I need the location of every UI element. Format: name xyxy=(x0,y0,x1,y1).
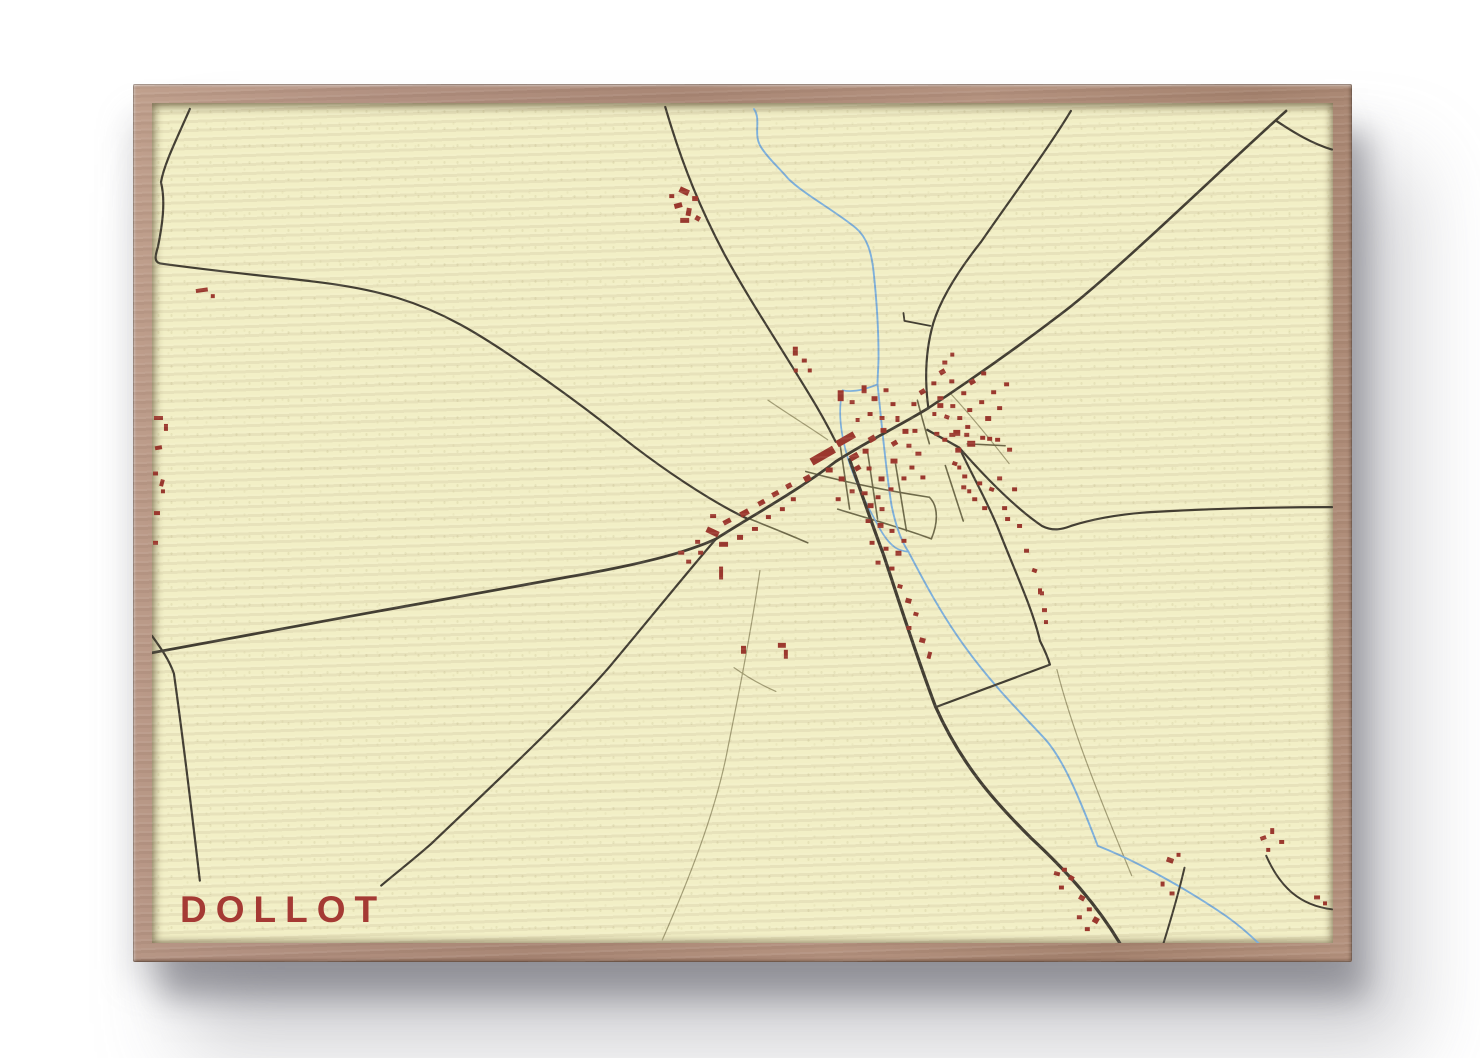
building xyxy=(826,468,833,473)
minor-road xyxy=(895,464,906,531)
building xyxy=(678,186,690,196)
major-road xyxy=(1276,121,1332,150)
building xyxy=(835,431,856,447)
building xyxy=(838,390,844,401)
building xyxy=(680,218,689,223)
map-svg xyxy=(152,103,1333,943)
building xyxy=(808,368,812,372)
building xyxy=(1017,524,1022,528)
building xyxy=(719,567,723,580)
building xyxy=(155,445,163,450)
building xyxy=(1005,517,1010,521)
building xyxy=(862,385,867,393)
building xyxy=(159,479,165,487)
building xyxy=(1166,857,1174,864)
building xyxy=(906,444,911,448)
building xyxy=(980,436,985,440)
building xyxy=(1007,448,1012,452)
building xyxy=(931,381,936,385)
building xyxy=(991,390,996,394)
building xyxy=(981,371,986,375)
building xyxy=(678,551,684,555)
building xyxy=(1024,549,1029,553)
building xyxy=(1002,506,1007,510)
building xyxy=(161,489,165,493)
building xyxy=(1092,916,1100,924)
building xyxy=(961,485,966,489)
building xyxy=(1054,871,1061,876)
building xyxy=(1062,868,1067,872)
building xyxy=(919,388,927,395)
building xyxy=(866,519,871,523)
building xyxy=(934,432,939,436)
major-road xyxy=(381,539,716,886)
building xyxy=(889,487,894,491)
major-road xyxy=(926,111,1071,408)
building xyxy=(964,433,969,437)
building xyxy=(722,517,731,525)
building xyxy=(757,499,765,507)
building xyxy=(997,406,1002,410)
building xyxy=(972,497,977,501)
building xyxy=(1170,891,1175,895)
map-canvas: DOLLOT xyxy=(152,103,1333,943)
building xyxy=(938,368,946,375)
building xyxy=(1177,853,1181,857)
building xyxy=(952,461,958,466)
building xyxy=(856,418,860,422)
building xyxy=(694,215,701,222)
building xyxy=(872,396,878,401)
building xyxy=(881,428,887,433)
minor-roads-group xyxy=(750,400,1005,543)
building xyxy=(1266,848,1270,852)
building xyxy=(695,540,700,544)
building xyxy=(810,446,836,466)
minor-road xyxy=(838,509,932,539)
building xyxy=(967,441,975,447)
building xyxy=(890,567,895,571)
building xyxy=(868,412,873,416)
building xyxy=(965,425,970,429)
building xyxy=(154,511,160,515)
building xyxy=(897,584,903,589)
building xyxy=(950,404,955,408)
building xyxy=(674,202,683,209)
map-title: DOLLOT xyxy=(180,889,386,931)
major-roads-group xyxy=(152,107,1332,943)
minor-road xyxy=(750,519,808,543)
building xyxy=(164,424,168,431)
building xyxy=(927,651,933,659)
building xyxy=(997,476,1002,480)
building xyxy=(891,440,899,447)
building xyxy=(1077,915,1082,919)
building xyxy=(942,438,947,442)
minor-road xyxy=(840,442,850,509)
building xyxy=(863,449,869,454)
building xyxy=(977,481,982,485)
building xyxy=(686,560,691,564)
building xyxy=(698,551,703,555)
building xyxy=(870,541,875,545)
faint-path xyxy=(768,400,828,440)
building xyxy=(802,359,807,363)
building xyxy=(692,196,698,201)
building xyxy=(1012,487,1017,491)
river xyxy=(754,109,1260,943)
building xyxy=(686,208,692,217)
building xyxy=(1042,608,1047,612)
building xyxy=(868,503,874,508)
building xyxy=(1161,882,1165,887)
building xyxy=(937,396,943,400)
buildings-group xyxy=(153,186,1327,931)
building xyxy=(793,347,798,356)
building xyxy=(880,507,885,511)
major-road xyxy=(152,408,928,653)
major-road xyxy=(152,636,200,881)
building xyxy=(957,466,961,470)
building xyxy=(987,437,992,441)
building xyxy=(957,416,962,420)
minor-road xyxy=(945,466,963,521)
building xyxy=(794,368,798,372)
poster-photo: DOLLOT xyxy=(0,0,1480,1058)
building xyxy=(901,476,906,480)
building xyxy=(741,646,746,654)
building xyxy=(1059,886,1064,890)
rivers-group xyxy=(754,109,1260,943)
building xyxy=(876,561,881,565)
building xyxy=(669,194,674,198)
major-road xyxy=(665,107,835,442)
building xyxy=(932,412,936,416)
building xyxy=(876,495,881,499)
building xyxy=(867,467,872,471)
building xyxy=(890,529,895,533)
building xyxy=(884,388,889,392)
building xyxy=(911,402,916,406)
faint-path xyxy=(734,668,776,692)
building xyxy=(153,471,158,475)
building xyxy=(967,489,971,493)
building xyxy=(839,476,845,481)
building xyxy=(961,391,966,395)
building xyxy=(905,598,912,604)
building xyxy=(836,497,841,501)
building xyxy=(995,438,1000,442)
building xyxy=(890,402,895,406)
building xyxy=(989,487,995,492)
building xyxy=(979,400,984,404)
building xyxy=(949,433,955,437)
building xyxy=(942,361,947,365)
building xyxy=(919,637,926,643)
building xyxy=(944,414,950,419)
building xyxy=(862,491,868,495)
building xyxy=(962,474,967,478)
building xyxy=(1260,835,1267,841)
building xyxy=(791,497,796,501)
building xyxy=(982,506,987,510)
building xyxy=(901,539,906,543)
building xyxy=(915,452,921,456)
building xyxy=(1087,907,1092,911)
building xyxy=(719,542,728,547)
building xyxy=(902,429,908,434)
building xyxy=(1323,901,1327,905)
building xyxy=(784,650,788,659)
building xyxy=(153,541,158,545)
building xyxy=(785,482,793,489)
building xyxy=(752,527,758,531)
building xyxy=(949,379,954,383)
building xyxy=(710,514,716,518)
faint-path xyxy=(1057,670,1132,876)
major-road xyxy=(156,109,748,519)
building xyxy=(950,353,954,357)
building xyxy=(1314,895,1320,899)
building xyxy=(955,448,961,453)
building xyxy=(895,416,899,422)
major-road xyxy=(1266,856,1332,909)
building xyxy=(850,400,855,404)
building xyxy=(967,408,972,412)
building xyxy=(850,489,855,493)
building xyxy=(884,547,889,551)
major-road xyxy=(928,111,1286,408)
building xyxy=(771,490,779,498)
building xyxy=(1004,382,1009,386)
building xyxy=(1044,620,1048,624)
building xyxy=(196,287,208,293)
building xyxy=(803,474,812,483)
building xyxy=(1040,591,1044,595)
building xyxy=(920,475,925,479)
building xyxy=(780,507,785,511)
building xyxy=(985,416,991,421)
building xyxy=(1279,840,1284,844)
poster-frame: DOLLOT xyxy=(133,84,1352,962)
building xyxy=(705,527,719,538)
building xyxy=(778,643,786,648)
building xyxy=(880,416,885,420)
building xyxy=(913,612,919,617)
building xyxy=(1270,828,1274,834)
building xyxy=(878,523,884,528)
building xyxy=(937,403,943,408)
faint-path xyxy=(662,571,760,940)
building xyxy=(1085,927,1090,931)
building xyxy=(909,466,914,470)
major-road xyxy=(903,313,930,326)
building xyxy=(906,626,911,630)
building xyxy=(895,551,901,556)
minor-road xyxy=(929,497,936,539)
building xyxy=(737,535,743,540)
building xyxy=(766,515,771,519)
building xyxy=(211,294,215,298)
building xyxy=(879,476,885,481)
building xyxy=(912,429,917,433)
building xyxy=(890,459,897,464)
building xyxy=(154,416,163,420)
building xyxy=(1031,568,1037,573)
